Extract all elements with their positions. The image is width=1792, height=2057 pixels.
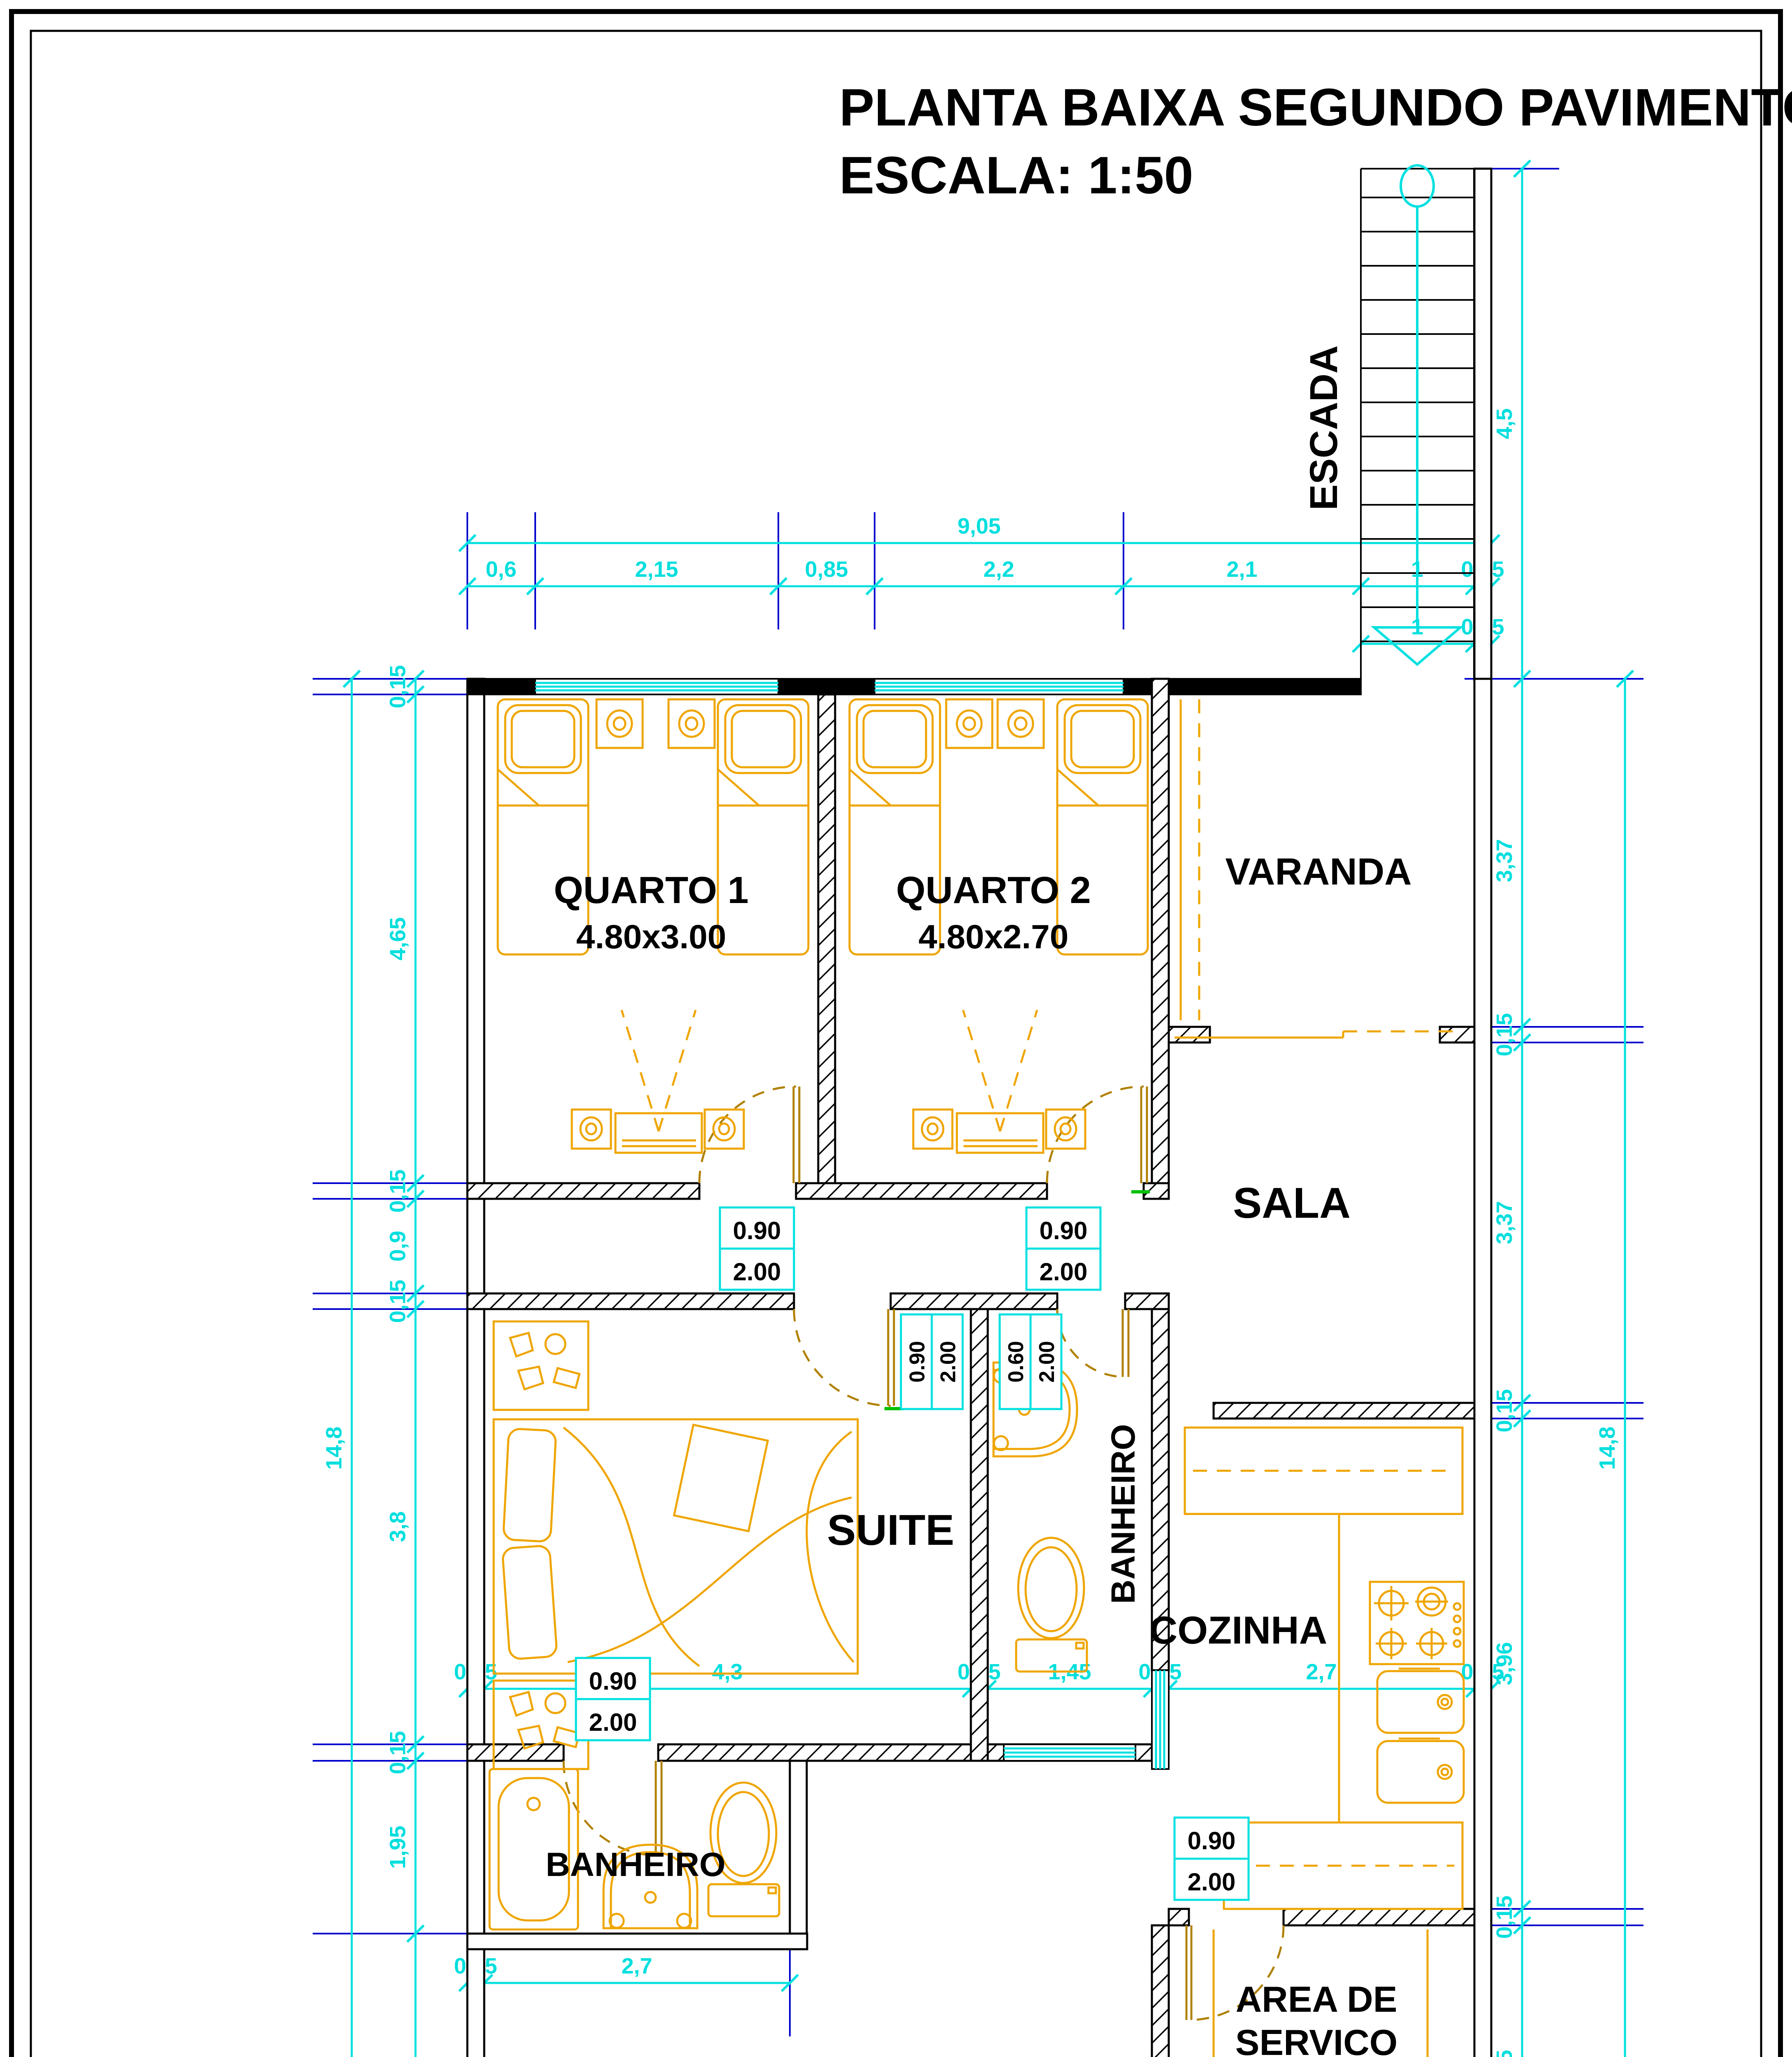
room-label-varanda: VARANDA — [1225, 851, 1411, 893]
wall-spine-upper — [1152, 679, 1169, 1183]
door-label-area: 0.90 2.00 — [1175, 1818, 1249, 1900]
dim-label: 2,7 — [1306, 1660, 1337, 1684]
door-height-label: 2.00 — [936, 1341, 960, 1382]
nightstand-icon — [494, 1321, 588, 1410]
dim-label: 14,8 — [322, 1426, 346, 1470]
door-threshold-mark — [1131, 1190, 1150, 1193]
wall-quartos-bottom — [796, 1183, 1047, 1199]
bed-icon — [850, 699, 940, 954]
wall-corridor-bottom — [1125, 1293, 1169, 1309]
dresser-tv-icon — [572, 1010, 744, 1153]
window-spine — [1152, 1670, 1169, 1769]
dim-label: 4,5 — [1492, 408, 1517, 439]
dim-label: 0,9 — [385, 1230, 410, 1261]
dim-label: 0,6 — [485, 557, 516, 582]
dim-label: 3,65 — [1492, 2050, 1517, 2057]
wall-area-left — [1152, 1925, 1169, 2057]
page-title: PLANTA BAIXA SEGUNDO PAVIMENTO — [839, 78, 1792, 137]
room-label-sala: SALA — [1233, 1179, 1351, 1227]
dim-label: 1,95 — [385, 1825, 410, 1869]
stair-right-wall — [1474, 169, 1491, 679]
door-height-label: 2.00 — [1188, 1868, 1236, 1896]
wall-varanda-stub — [1169, 1027, 1210, 1042]
page-scale: ESCALA: 1:50 — [839, 146, 1193, 205]
wall-quartos-bottom — [467, 1183, 699, 1199]
dimension-chains: 9,05 0,6 2,15 0,85 2,2 2,1 1 0,15 14,8 0… — [313, 160, 1643, 2057]
dim-label: 2,7 — [621, 1954, 652, 1978]
stair-start-circle — [1401, 165, 1434, 207]
dim-label: 9,05 — [957, 514, 1000, 539]
dim-label: 4,3 — [712, 1660, 743, 1684]
floor-plan-canvas: PLANTA BAIXA SEGUNDO PAVIMENTO ESCALA: 1… — [0, 0, 1792, 2057]
room-label-quarto2: QUARTO 2 — [896, 869, 1091, 911]
door-width-label: 0.90 — [1040, 1217, 1088, 1244]
door-width-label: 0.90 — [589, 1667, 637, 1695]
extension-lines-left — [313, 679, 547, 2057]
door-suite — [794, 1309, 903, 1410]
wall-corridor-bottom — [891, 1293, 1057, 1309]
room-size-quarto2: 4.80x2.70 — [919, 918, 1069, 956]
door-width-label: 0.60 — [1004, 1341, 1028, 1382]
room-size-quarto1: 4.80x3.00 — [576, 918, 727, 956]
dim-label: 0,85 — [805, 557, 848, 582]
dim-label: 14,8 — [1595, 1426, 1620, 1470]
staircase: ESCADA — [1302, 165, 1491, 679]
window-quarto2 — [875, 679, 1123, 694]
door-height-label: 2.00 — [1035, 1341, 1059, 1382]
dim-label: 0,15 — [1492, 1013, 1517, 1056]
wall-bath-bottom — [467, 1934, 807, 1949]
door-width-label: 0.90 — [733, 1217, 781, 1244]
bed-icon — [498, 699, 588, 954]
room-label-area-line1: AREA DE — [1236, 1979, 1397, 2020]
stove-icon — [1370, 1582, 1464, 1664]
dim-label: 0,15 — [1492, 1389, 1517, 1432]
wall-cozinha-area — [1169, 1909, 1189, 1925]
wall-suite-bottom — [467, 1744, 564, 1761]
wall-corridor-bottom — [467, 1293, 794, 1309]
wall-quarto-partition — [818, 694, 835, 1183]
wall-left-outer — [467, 679, 484, 2057]
wall-suite-bath-left — [971, 1309, 988, 1761]
room-label-banheiro-suite: BANHEIRO — [1105, 1424, 1142, 1604]
door-width-label: 0.90 — [905, 1341, 929, 1382]
door-height-label: 2.00 — [589, 1709, 637, 1736]
wall-top-pier — [778, 679, 875, 694]
dim-label: 0,15 — [1492, 1895, 1517, 1939]
room-label-banheiro: BANHEIRO — [545, 1846, 725, 1883]
door-height-label: 2.00 — [1040, 1258, 1088, 1286]
dim-label: 3,37 — [1492, 1201, 1517, 1244]
wall-sala-cozinha — [1214, 1403, 1474, 1419]
nightstand-icon — [998, 699, 1044, 748]
door-height-label: 2.00 — [733, 1258, 781, 1286]
dim-label: 0,15 — [385, 665, 410, 708]
dim-label: 0,15 — [385, 1279, 410, 1323]
double-bed-icon — [494, 1419, 858, 1674]
door-label-banheiro: 0.90 2.00 — [576, 1658, 650, 1740]
room-label-area-line2: SERVICO — [1235, 2022, 1398, 2057]
dim-label: 3,8 — [385, 1511, 410, 1542]
dim-label: 4,65 — [385, 917, 410, 960]
room-label-cozinha: COZINHA — [1149, 1609, 1328, 1652]
door-label-suitebath: 0.60 2.00 — [1000, 1314, 1061, 1409]
nightstand-icon — [669, 699, 715, 748]
dim-label: 0,15 — [385, 1169, 410, 1212]
wall-cozinha-area — [1284, 1909, 1474, 1925]
door-label-suite: 0.90 2.00 — [901, 1314, 963, 1409]
dim-label: 2,1 — [1226, 557, 1257, 582]
dim-label: 2,2 — [983, 557, 1014, 582]
window-suitebath — [1004, 1744, 1135, 1761]
wall-right-outer — [1474, 679, 1491, 2057]
wall-suite-bottom — [658, 1744, 971, 1761]
nightstand-icon — [946, 699, 992, 748]
dim-label: 0,15 — [385, 1731, 410, 1774]
bed-icon — [718, 699, 808, 954]
door-quarto2 — [1047, 1087, 1147, 1183]
extension-lines-top — [467, 169, 1559, 681]
door-label-quarto1: 0.90 2.00 — [720, 1207, 794, 1290]
dresser-tv-icon — [913, 1010, 1085, 1153]
bed-icon — [1057, 699, 1148, 954]
wall-bath-right — [790, 1761, 807, 1934]
wall-top-pier — [467, 679, 535, 694]
room-label-suite: SUITE — [827, 1506, 954, 1554]
dim-label: 3,37 — [1492, 839, 1517, 882]
door-label-quarto2: 0.90 2.00 — [1026, 1207, 1100, 1290]
room-label-quarto1: QUARTO 1 — [554, 869, 749, 911]
dim-ticks — [344, 160, 1633, 2057]
nightstand-icon — [597, 699, 643, 748]
toilet-icon — [1016, 1538, 1087, 1672]
room-label-escada: ESCADA — [1302, 345, 1346, 510]
door-suitebath — [1057, 1309, 1128, 1377]
window-quarto1 — [535, 679, 778, 694]
dim-label: 2,15 — [635, 557, 678, 582]
wall-varanda-stub — [1440, 1027, 1474, 1042]
door-width-label: 0.90 — [1188, 1827, 1236, 1855]
